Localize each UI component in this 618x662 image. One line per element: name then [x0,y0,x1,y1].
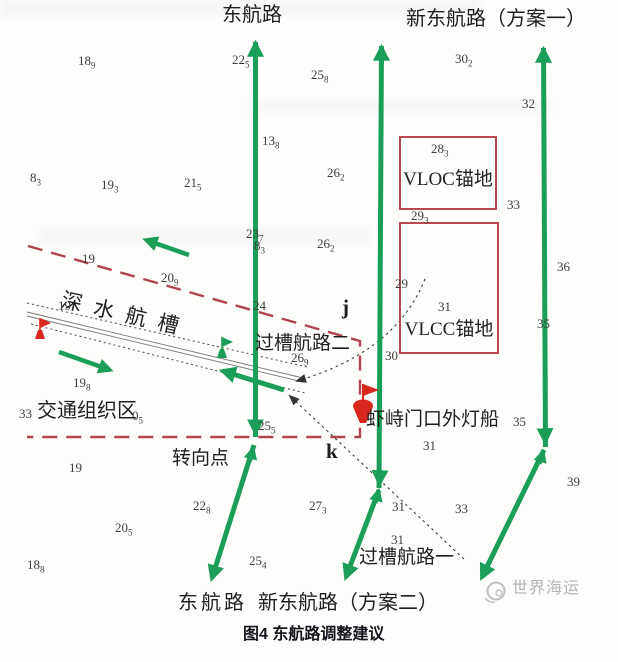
depth-sounding: 262 [327,165,345,181]
watermark-logo-icon [485,583,505,603]
depth-sounding: 31 [392,499,405,515]
watermark-text: 世界海运 [512,580,580,598]
depth-sounding: 262 [317,236,335,252]
depth-sounding: 225 [232,52,250,68]
depth-sounding: 215 [184,175,202,191]
depth-sounding: 302 [455,51,473,67]
cross-route1-label: 过槽航路一 [359,548,454,569]
depth-sounding: 228 [193,498,211,514]
depth-sounding: 209 [161,270,179,286]
lightship-label: 虾峙门口外灯船 [366,410,499,431]
depth-sounding: 198 [73,375,91,391]
depth-sounding: 255 [258,418,276,434]
depth-sounding: 254 [249,553,267,569]
depth-sounding: 269 [291,350,309,366]
depth-sounding: 293 [411,208,429,224]
depth-sounding: 39 [567,474,580,490]
vlcc-anchorage-label: VLCC锚地 [401,224,497,341]
nautical-chart-figure: VLOC锚地 VLCC锚地 东航路 新东航路（方案一） 深水航槽 过槽航路二 交… [0,0,618,662]
vlcc-anchorage-box: VLCC锚地 [399,222,499,354]
depth-sounding: 205 [115,520,133,536]
bottom-east-route-label: 东航路 [178,592,247,614]
depth-sounding: 283 [431,141,449,157]
depth-sounding: 35 [513,414,526,430]
depth-sounding: 30 [385,348,398,364]
depth-sounding: 83 [30,170,41,186]
depth-sounding: 193 [101,177,119,193]
point-j-label: j [342,296,349,319]
traffic-zone-label: 交通组织区 [37,400,137,422]
depth-sounding: 31 [423,438,436,454]
depth-sounding: 19 [82,251,95,267]
depth-sounding: 31 [391,532,404,548]
turning-point-label: 转向点 [172,449,229,470]
depth-sounding: 19 [69,460,82,476]
depth-sounding: 05 [132,408,143,424]
depth-sounding: 32 [522,96,535,112]
figure-caption: 图4 东航路调整建议 [243,626,384,644]
depth-sounding: 31 [438,299,451,315]
depth-sounding: 35 [537,316,550,332]
top-new-route-plan1-label: 新东航路（方案一） [406,8,586,30]
depth-sounding: 24 [253,298,266,314]
depth-sounding: 273 [309,498,327,514]
depth-sounding: 33 [19,406,32,422]
depth-sounding: 138 [262,133,280,149]
depth-sounding: 188 [27,557,45,573]
depth-sounding: 83 [254,238,265,254]
depth-sounding: 33 [507,197,520,213]
top-east-route-label: 东航路 [222,4,282,26]
green-buoy-icon [217,337,233,358]
westbound-direction-arrow [146,240,189,255]
depth-sounding: 189 [78,53,96,69]
depth-sounding: 29 [395,276,408,292]
new-east-route-plan2-line [346,46,382,577]
bottom-new-route-plan2-label: 新东航路（方案二） [258,592,438,614]
depth-sounding: 33 [455,501,468,517]
eastbound-direction-arrow [59,352,110,370]
depth-sounding: 36 [557,259,570,275]
depth-sounding: 19 [58,298,71,314]
point-k-label: k [326,440,338,463]
depth-sounding: 258 [311,67,329,83]
